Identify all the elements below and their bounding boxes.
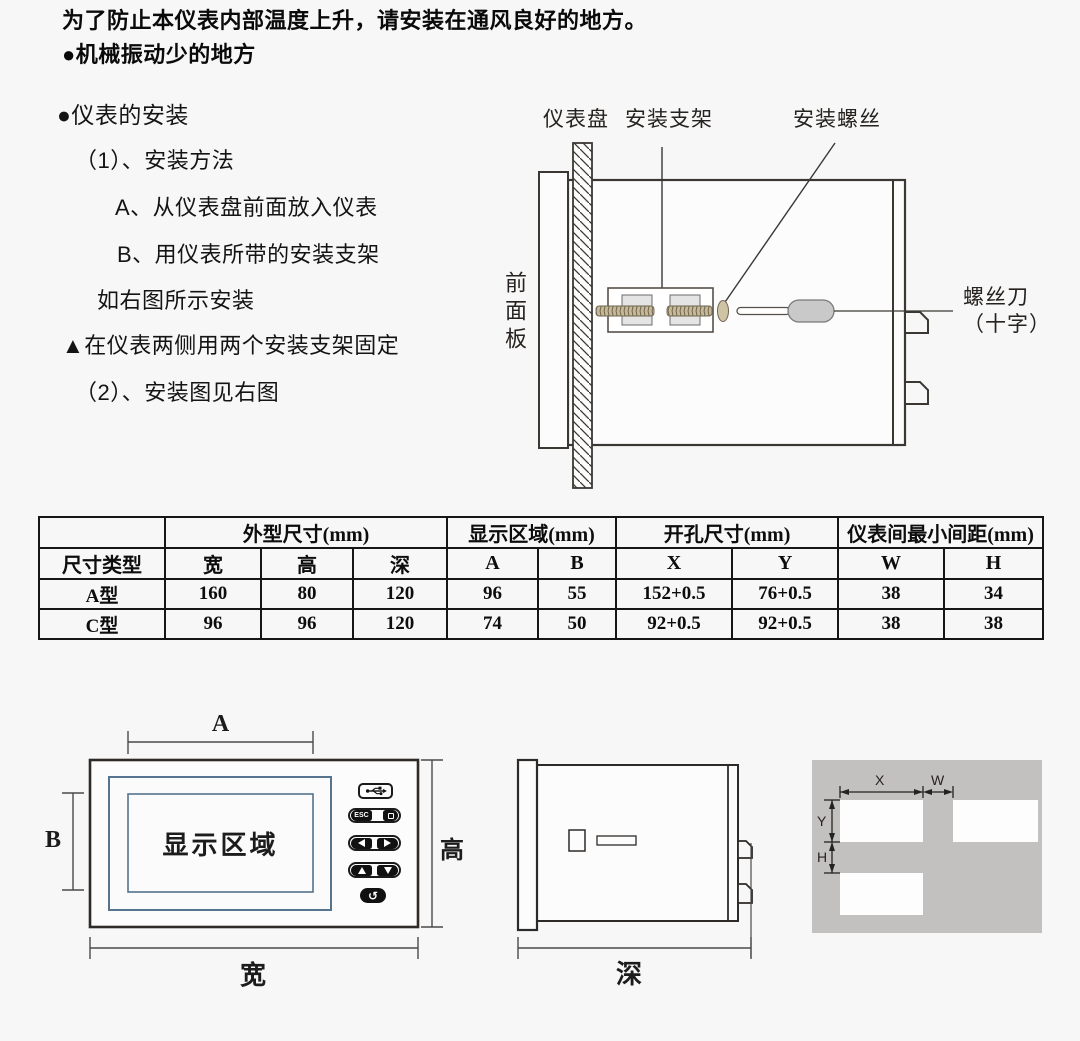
- side-detail-slot: [569, 830, 585, 851]
- cell: 38: [944, 609, 1043, 639]
- screwdriver-shaft: [737, 308, 790, 315]
- mounting-screw-thread: [596, 306, 654, 316]
- rear-hook: [905, 382, 928, 404]
- col-header: 高: [261, 548, 353, 579]
- up-key: [351, 865, 372, 876]
- mounting-screw-thread: [667, 306, 712, 316]
- col-header: A: [447, 548, 538, 579]
- cell: 160: [165, 579, 261, 609]
- side-body: [537, 765, 738, 921]
- col-header: Y: [732, 548, 838, 579]
- table-row: C型 96 96 120 74 50 92+0.5 92+0.5 38 38: [39, 609, 1043, 639]
- manual-page: 为了防止本仪表内部温度上升，请安装在通风良好的地方。 ●机械振动少的地方 ●仪表…: [0, 0, 1080, 1041]
- dim-label-w: W: [931, 772, 944, 788]
- cell: 80: [261, 579, 353, 609]
- group-header-spacing: 仪表间最小间距(mm): [838, 517, 1043, 548]
- side-bezel: [518, 760, 537, 930]
- side-view-diagram: 深: [480, 740, 790, 1000]
- esc-key: ESC: [351, 810, 372, 821]
- left-arrow-icon: [358, 839, 365, 847]
- cell: 152+0.5: [616, 579, 732, 609]
- right-key: [377, 838, 398, 849]
- esc-display-button: ESC: [348, 808, 401, 823]
- intro-line-2: ●机械振动少的地方: [62, 37, 256, 69]
- usb-icon: [364, 786, 388, 796]
- install-step: 如右图所示安装: [97, 283, 255, 315]
- table-group-header-row: 外型尺寸(mm) 显示区域(mm) 开孔尺寸(mm) 仪表间最小间距(mm): [39, 517, 1043, 548]
- front-view-diagram: 显示区域 A B 高 宽 ESC: [40, 700, 480, 1000]
- cell: 74: [447, 609, 538, 639]
- dim-label-height: 高: [440, 830, 464, 865]
- cell: 92+0.5: [616, 609, 732, 639]
- table-subheader-row: 尺寸类型 宽 高 深 A B X Y W H: [39, 548, 1043, 579]
- intro-line-1: 为了防止本仪表内部温度上升，请安装在通风良好的地方。: [62, 3, 647, 35]
- panel-wall-hatch: [573, 143, 592, 488]
- cell: 120: [353, 579, 447, 609]
- install-step: ▲在仪表两侧用两个安装支架固定: [62, 328, 399, 360]
- usb-port-button: [358, 783, 393, 799]
- col-header: 宽: [165, 548, 261, 579]
- row-type: A型: [39, 579, 165, 609]
- cell: 38: [838, 609, 944, 639]
- row-type: C型: [39, 609, 165, 639]
- cutout-diagram: X W Y H: [810, 758, 1060, 938]
- screw-head: [718, 301, 729, 322]
- left-key: [351, 838, 372, 849]
- cell: 55: [538, 579, 616, 609]
- corner-cell: [39, 517, 165, 548]
- table-row: A型 160 80 120 96 55 152+0.5 76+0.5 38 34: [39, 579, 1043, 609]
- install-step: （1）、安装方法: [75, 143, 234, 175]
- cell: 50: [538, 609, 616, 639]
- screwdriver-handle: [788, 300, 834, 322]
- down-key: [377, 865, 398, 876]
- row-header-label: 尺寸类型: [39, 548, 165, 579]
- enter-icon: ↺: [368, 889, 378, 903]
- dim-label-depth: 深: [616, 954, 642, 991]
- installation-diagram-art: [490, 95, 1080, 495]
- dimensions-table: 外型尺寸(mm) 显示区域(mm) 开孔尺寸(mm) 仪表间最小间距(mm) 尺…: [38, 516, 1044, 640]
- col-header: B: [538, 548, 616, 579]
- cell: 96: [165, 609, 261, 639]
- group-header-display: 显示区域(mm): [447, 517, 616, 548]
- install-section-title: ●仪表的安装: [57, 96, 189, 130]
- enter-button: ↺: [360, 888, 386, 903]
- dim-label-y: Y: [817, 813, 826, 829]
- esc-key-label: ESC: [354, 812, 368, 819]
- down-arrow-icon: [384, 867, 392, 874]
- display-key: [383, 810, 398, 821]
- col-header: H: [944, 548, 1043, 579]
- up-arrow-icon: [358, 867, 366, 874]
- cell: 120: [353, 609, 447, 639]
- cell: 76+0.5: [732, 579, 838, 609]
- install-step: B、用仪表所带的安装支架: [117, 237, 380, 269]
- col-header: W: [838, 548, 944, 579]
- dim-label-a: A: [203, 711, 238, 738]
- up-down-button: [348, 862, 401, 878]
- col-header: 深: [353, 548, 447, 579]
- install-step: A、从仪表盘前面放入仪表: [115, 190, 378, 222]
- cell: 92+0.5: [732, 609, 838, 639]
- cell: 34: [944, 579, 1043, 609]
- side-hook: [738, 841, 752, 858]
- cell: 38: [838, 579, 944, 609]
- right-arrow-icon: [384, 839, 391, 847]
- display-page-icon: [388, 813, 394, 819]
- installation-diagram: 仪表盘 安装支架 安装螺丝 前面板 螺丝刀 （十字）: [490, 95, 1080, 495]
- side-detail-vent: [597, 836, 636, 845]
- dim-label-b: B: [41, 827, 65, 854]
- install-step: （2）、安装图见右图: [75, 375, 279, 407]
- dim-label-h: H: [817, 849, 827, 865]
- dim-label-width: 宽: [240, 955, 266, 992]
- display-area-label: 显示区域: [128, 794, 313, 892]
- cell: 96: [261, 609, 353, 639]
- cell: 96: [447, 579, 538, 609]
- group-header-outline: 外型尺寸(mm): [165, 517, 447, 548]
- col-header: X: [616, 548, 732, 579]
- side-hook: [738, 884, 752, 903]
- front-bezel: [539, 172, 568, 448]
- left-right-button: [348, 835, 401, 851]
- group-header-cutout: 开孔尺寸(mm): [616, 517, 838, 548]
- rear-hook: [905, 312, 928, 333]
- dim-label-x: X: [875, 772, 884, 788]
